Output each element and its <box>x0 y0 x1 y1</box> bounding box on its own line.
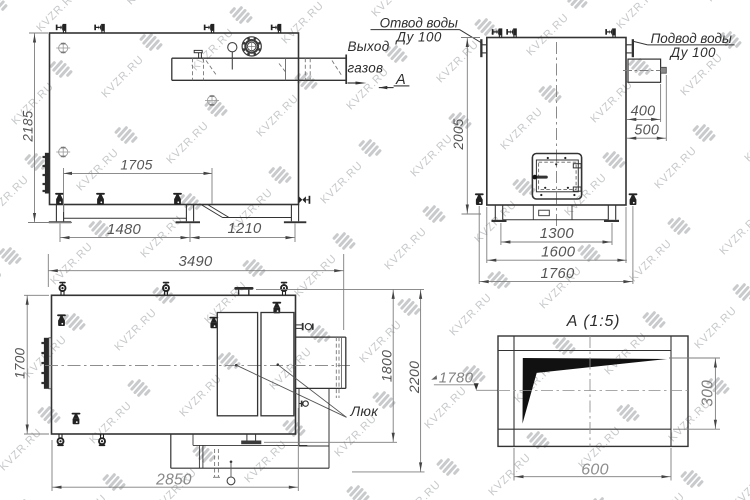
svg-text:Выход: Выход <box>348 39 390 54</box>
svg-text:Ду 100: Ду 100 <box>395 30 442 45</box>
svg-text:Люк: Люк <box>350 403 380 419</box>
svg-text:1760: 1760 <box>540 266 575 282</box>
svg-text:2005: 2005 <box>451 118 466 150</box>
svg-text:1480: 1480 <box>107 222 142 238</box>
svg-text:600: 600 <box>581 461 609 478</box>
svg-text:2850: 2850 <box>155 472 192 489</box>
svg-text:1700: 1700 <box>12 347 27 378</box>
svg-text:3490: 3490 <box>178 254 213 270</box>
svg-text:А (1:5): А (1:5) <box>566 313 621 330</box>
svg-text:500: 500 <box>634 122 659 138</box>
svg-text:1800: 1800 <box>378 350 394 382</box>
svg-text:газов: газов <box>348 61 384 76</box>
svg-text:А: А <box>395 72 406 88</box>
svg-text:1780: 1780 <box>439 370 474 387</box>
svg-text:1300: 1300 <box>540 226 575 242</box>
svg-text:300: 300 <box>699 380 716 407</box>
svg-text:Отвод воды: Отвод воды <box>380 16 458 31</box>
svg-text:Подвод воды: Подвод воды <box>651 31 732 46</box>
svg-text:1210: 1210 <box>227 221 262 237</box>
svg-text:1600: 1600 <box>541 244 576 260</box>
svg-text:Ду 100: Ду 100 <box>669 45 716 60</box>
svg-text:1705: 1705 <box>120 157 152 173</box>
svg-text:2200: 2200 <box>406 361 422 394</box>
svg-text:2185: 2185 <box>21 110 36 142</box>
svg-text:400: 400 <box>631 104 656 120</box>
